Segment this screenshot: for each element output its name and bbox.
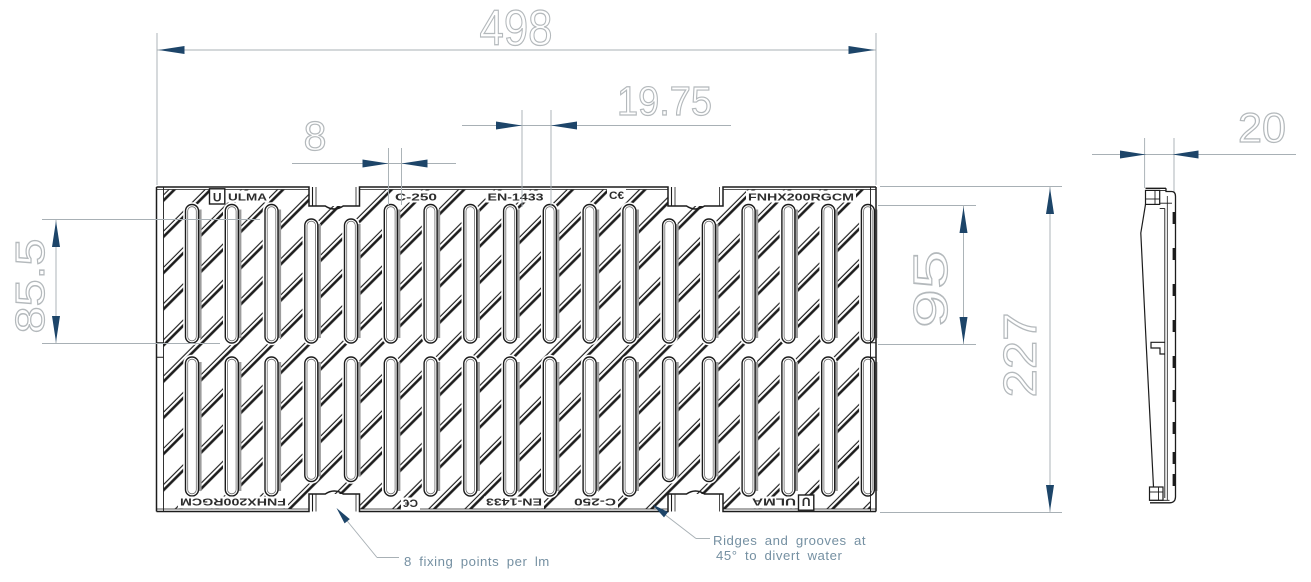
svg-text:45° to divert water: 45° to divert water	[716, 548, 843, 563]
svg-text:Ridges and grooves at: Ridges and grooves at	[713, 533, 866, 548]
svg-text:EN-1433: EN-1433	[488, 192, 544, 204]
svg-text:8: 8	[304, 113, 327, 159]
svg-text:U: U	[213, 191, 222, 205]
svg-text:FNHX200RGCM: FNHX200RGCM	[180, 496, 286, 508]
svg-text:ULMA: ULMA	[228, 192, 268, 204]
svg-text:C€: C€	[609, 190, 624, 202]
svg-text:498: 498	[480, 0, 553, 56]
svg-text:U: U	[802, 495, 811, 509]
svg-text:EN-1433: EN-1433	[486, 496, 542, 508]
svg-text:C-250: C-250	[574, 496, 616, 508]
svg-text:227: 227	[994, 313, 1046, 398]
svg-text:8 fixing points per lm: 8 fixing points per lm	[404, 554, 550, 569]
svg-text:20: 20	[1238, 104, 1286, 151]
svg-text:85.5: 85.5	[7, 239, 53, 334]
svg-text:C€: C€	[403, 497, 418, 509]
svg-text:95: 95	[905, 250, 958, 328]
svg-text:FNHX200RGCM: FNHX200RGCM	[748, 192, 854, 204]
svg-text:ULMA: ULMA	[751, 496, 796, 508]
svg-text:19.75: 19.75	[617, 78, 712, 124]
